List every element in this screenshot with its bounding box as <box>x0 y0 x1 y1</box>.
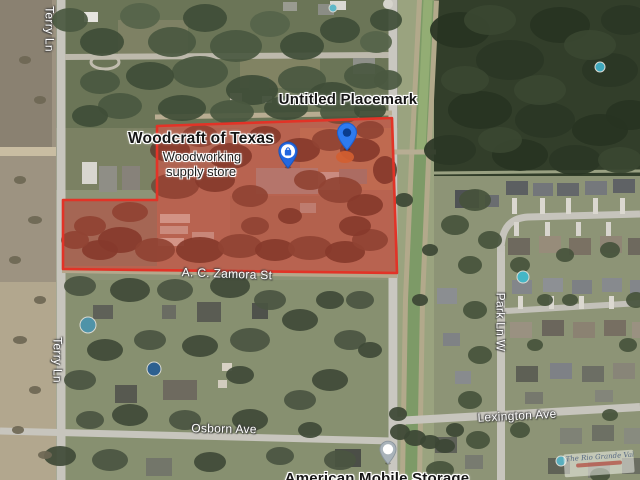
house-rooftop <box>539 236 561 253</box>
tree-canopy <box>9 256 21 264</box>
tree-canopy <box>182 335 218 357</box>
tree-canopy <box>395 193 413 207</box>
swimming-pool <box>80 317 96 333</box>
house-rooftop <box>613 363 635 379</box>
house-rooftop <box>560 428 582 444</box>
house-rooftop <box>99 166 117 192</box>
tree-canopy <box>527 339 543 351</box>
house-rooftop <box>506 181 528 195</box>
tree-canopy <box>34 96 46 104</box>
tree-canopy <box>230 328 270 352</box>
tree-canopy <box>515 102 575 138</box>
house-rooftop <box>82 162 97 184</box>
tree-canopy <box>466 431 490 449</box>
tree-canopy <box>148 27 196 57</box>
tree-canopy <box>80 70 120 94</box>
house-rooftop <box>628 238 640 255</box>
tree-canopy <box>354 100 386 120</box>
tree-canopy <box>64 370 96 390</box>
swimming-pool <box>595 62 605 72</box>
tree-canopy <box>374 70 402 90</box>
tree-canopy <box>549 145 601 175</box>
house-rooftop <box>557 183 579 196</box>
house-rooftop <box>593 198 598 214</box>
tree-canopy <box>448 91 512 129</box>
house-rooftop <box>595 390 613 402</box>
house-rooftop <box>543 278 563 292</box>
tree-canopy <box>264 96 308 120</box>
tree-canopy <box>324 450 356 470</box>
tree-canopy <box>210 30 262 62</box>
terrain-patch <box>0 147 56 156</box>
house-rooftop <box>162 305 176 319</box>
tree-canopy <box>12 426 24 434</box>
house-rooftop <box>512 198 517 214</box>
tree-canopy <box>389 407 407 421</box>
house-rooftop <box>602 278 622 292</box>
tree-canopy <box>72 105 108 127</box>
house-rooftop <box>624 428 640 444</box>
house-rooftop <box>115 385 137 403</box>
tree-canopy <box>602 409 618 421</box>
tree-canopy <box>284 390 316 410</box>
tree-canopy <box>250 11 290 37</box>
tree-canopy <box>172 56 228 88</box>
tree-canopy <box>76 411 104 429</box>
tree-canopy <box>458 391 482 409</box>
tree-canopy <box>478 231 502 249</box>
mls-watermark: The Rio Grande Valley <box>563 450 634 478</box>
swimming-pool <box>147 362 161 376</box>
tree-canopy <box>510 257 530 273</box>
house-rooftop <box>620 198 625 214</box>
house-rooftop <box>146 458 172 476</box>
tree-canopy <box>370 9 402 31</box>
house-rooftop <box>630 280 640 294</box>
tree-canopy <box>441 215 469 235</box>
house-rooftop <box>465 455 483 469</box>
house-rooftop <box>576 222 581 236</box>
tree-canopy <box>562 294 578 306</box>
house-rooftop <box>613 179 635 193</box>
tree-canopy <box>598 147 640 173</box>
tree-canopy <box>158 95 206 121</box>
tree-canopy <box>194 452 226 472</box>
tree-canopy <box>110 278 150 302</box>
tree-canopy <box>34 296 46 304</box>
tree-canopy <box>232 409 268 431</box>
tree-canopy <box>424 135 476 165</box>
house-rooftop <box>518 296 523 309</box>
house-rooftop <box>550 363 572 379</box>
tree-canopy <box>157 279 193 301</box>
house-rooftop <box>197 302 221 322</box>
tree-canopy <box>422 244 438 256</box>
satellite-map-canvas[interactable]: Terry LnTerry LnA. C. Zamora StOsborn Av… <box>0 0 640 480</box>
tree-canopy <box>120 3 160 29</box>
tree-canopy <box>52 8 88 32</box>
tree-canopy <box>468 346 492 364</box>
tree-canopy <box>169 410 201 430</box>
satellite-imagery <box>0 0 640 480</box>
tree-canopy <box>87 339 123 361</box>
tree-canopy <box>13 336 27 344</box>
tree-canopy <box>80 28 124 56</box>
house-rooftop <box>122 166 140 190</box>
tree-canopy <box>254 290 286 310</box>
house-rooftop <box>510 322 532 338</box>
tree-canopy <box>298 422 322 438</box>
tree-canopy <box>412 294 428 306</box>
tree-canopy <box>435 439 455 453</box>
tree-canopy <box>510 422 530 438</box>
tree-canopy <box>280 32 324 60</box>
house-rooftop <box>606 222 611 236</box>
house-rooftop <box>218 380 227 388</box>
tree-canopy <box>126 62 174 90</box>
terrain-patch <box>0 0 52 150</box>
tree-canopy <box>92 449 128 471</box>
house-rooftop <box>545 222 550 236</box>
tree-canopy <box>38 451 52 459</box>
house-rooftop <box>283 2 297 11</box>
house-rooftop <box>632 322 640 338</box>
house-rooftop <box>516 366 538 382</box>
house-rooftop <box>573 322 595 338</box>
tree-canopy <box>282 309 318 331</box>
house-rooftop <box>592 425 614 441</box>
tree-canopy <box>112 404 148 426</box>
tree-canopy <box>19 56 31 64</box>
house-rooftop <box>163 380 197 400</box>
map-imagery-svg <box>0 0 640 480</box>
house-rooftop <box>582 366 604 382</box>
tree-canopy <box>441 66 489 94</box>
tree-canopy <box>556 248 574 262</box>
house-rooftop <box>514 222 519 236</box>
house-rooftop <box>533 183 553 196</box>
tree-canopy <box>358 342 382 358</box>
tree-canopy <box>564 30 616 60</box>
house-rooftop <box>572 280 592 294</box>
house-rooftop <box>443 333 460 346</box>
house-rooftop <box>508 238 530 255</box>
tree-canopy <box>478 127 522 153</box>
house-rooftop <box>579 296 584 309</box>
tree-canopy <box>446 423 464 437</box>
tree-canopy <box>426 461 454 479</box>
tree-canopy <box>514 75 566 105</box>
tree-canopy <box>537 294 553 306</box>
house-rooftop <box>566 198 571 214</box>
tree-canopy <box>226 366 254 384</box>
house-rooftop <box>93 305 113 319</box>
house-rooftop <box>542 320 564 336</box>
tree-canopy <box>29 386 41 394</box>
tree-canopy <box>346 291 374 309</box>
house-rooftop <box>525 392 543 404</box>
house-rooftop <box>609 296 614 309</box>
tree-canopy <box>14 176 26 184</box>
tree-canopy <box>28 216 42 224</box>
tree-canopy <box>183 4 227 32</box>
forest-edge-track <box>434 171 640 173</box>
tree-canopy <box>464 5 516 35</box>
tree-canopy <box>134 330 166 350</box>
tree-canopy <box>463 301 487 319</box>
tree-canopy <box>619 338 637 352</box>
swimming-pool <box>329 4 337 12</box>
tree-canopy <box>458 256 482 274</box>
tree-canopy <box>320 17 360 43</box>
tree-canopy <box>600 242 620 258</box>
tree-canopy <box>360 31 392 53</box>
house-rooftop <box>540 198 545 214</box>
swimming-pool <box>517 271 529 283</box>
tree-canopy <box>210 274 250 298</box>
tree-canopy <box>266 447 294 465</box>
tree-canopy <box>316 291 344 309</box>
tree-canopy <box>312 369 348 391</box>
house-rooftop <box>604 320 626 336</box>
tree-canopy <box>64 276 96 296</box>
house-rooftop <box>437 288 457 304</box>
tree-canopy <box>459 189 491 211</box>
house-rooftop <box>585 181 607 195</box>
tree-canopy <box>210 100 254 124</box>
house-rooftop <box>455 371 471 384</box>
